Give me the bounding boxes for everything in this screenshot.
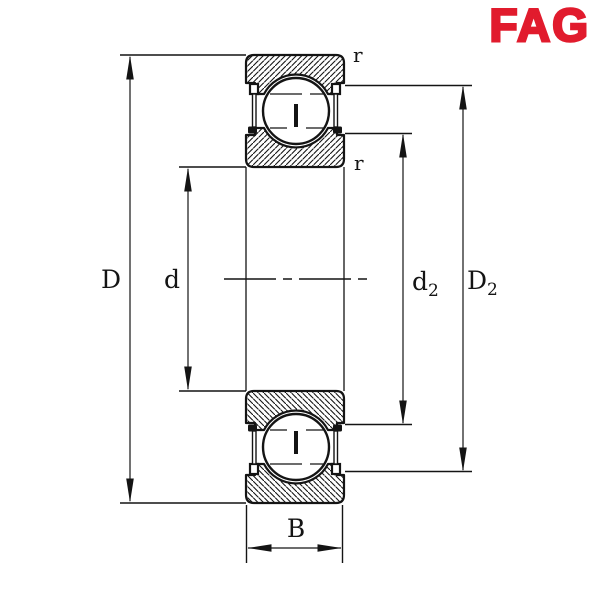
- label-width: B: [287, 514, 305, 543]
- right-shield-lip: [333, 127, 342, 134]
- left-shield: [253, 94, 257, 127]
- bearing-top-half-section: [246, 55, 344, 167]
- label-recess-diameter: D2: [467, 266, 498, 300]
- left-shield-lip: [248, 127, 257, 134]
- label-outside-diameter: D: [101, 265, 121, 294]
- label-shoulder-diameter: d2: [412, 267, 439, 301]
- bearing-bottom-half-section: [246, 391, 344, 503]
- label-bore-diameter: d: [164, 265, 180, 294]
- right-shield-anchor: [332, 84, 340, 94]
- label-chamfer-radius-top: r: [353, 43, 363, 67]
- left-shield-anchor: [250, 84, 258, 94]
- ball-center-mark: [294, 104, 298, 127]
- bearing-cross-section-diagram: D d d2 D2: [0, 0, 600, 600]
- bearing-drawing-canvas: FAG: [0, 0, 600, 600]
- right-shield: [334, 94, 338, 127]
- label-chamfer-radius-bottom: r: [354, 151, 364, 175]
- dimension-d2: [345, 134, 412, 425]
